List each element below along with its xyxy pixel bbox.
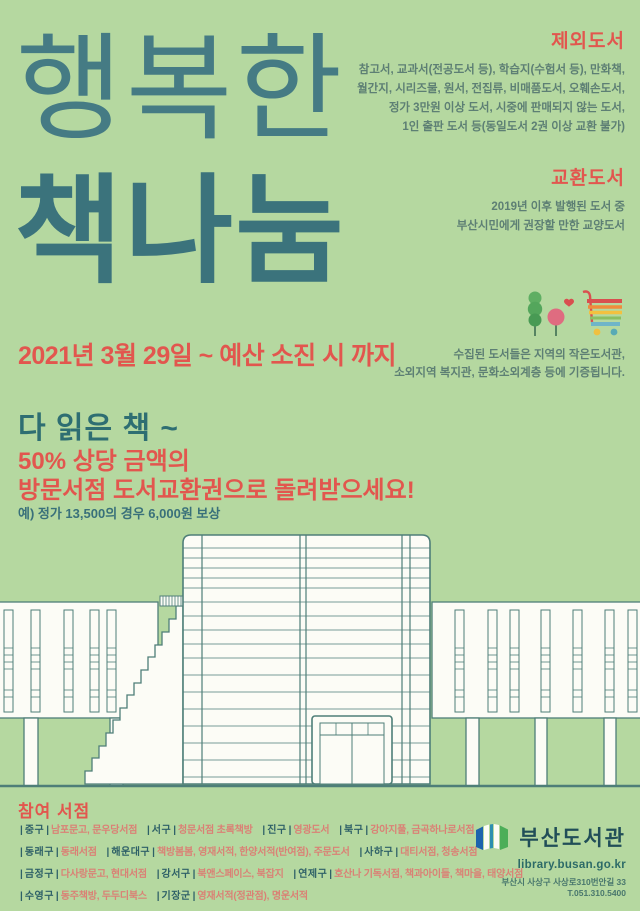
bookstore-entry: |강서구|북앤스페이스, 북잡지 xyxy=(155,869,289,880)
separator: | xyxy=(20,869,23,880)
exchange-books-text: 2019년 이후 발행된 도서 중 부산시민에게 권장할 만한 교양도서 xyxy=(295,198,625,236)
poster-background: 행복한 책나눔 2021년 3월 29일 ~ 예산 소진 시 까지 제외도서 참… xyxy=(0,0,640,911)
separator: | xyxy=(262,825,265,836)
library-brand-block: 부산도서관 library.busan.go.kr 부산시 사상구 사상로310… xyxy=(475,822,626,899)
district-label: 강서구 xyxy=(162,869,191,880)
bookstore-entry: |사하구|대티서점, 청송서점 xyxy=(357,847,482,858)
bookstore-entry: |진구|영광도서 xyxy=(260,825,334,836)
open-book-logo-icon xyxy=(475,822,511,852)
store-names: 영광도서 xyxy=(293,825,329,836)
store-names: 동래서점 xyxy=(61,847,97,858)
separator: | xyxy=(20,891,23,902)
store-names: 대티서점, 청송서점 xyxy=(400,847,477,858)
district-label: 진구 xyxy=(267,825,286,836)
store-names: 강아지풀, 금곡하나로서점 xyxy=(370,825,474,836)
separator: | xyxy=(56,847,59,858)
district-label: 수영구 xyxy=(25,891,54,902)
separator: | xyxy=(56,869,59,880)
separator: | xyxy=(152,847,155,858)
store-names: 남포문고, 문우당서점 xyxy=(51,825,137,836)
green-tree-icon xyxy=(528,292,542,337)
bookstore-row: |동래구|동래서점 |해운대구|책방봄봄, 영재서적, 한양서적(반여점), 주… xyxy=(18,842,483,864)
library-building-illustration xyxy=(0,528,640,793)
separator: | xyxy=(365,825,368,836)
promo-voucher: 방문서점 도서교환권으로 돌려받으세요! xyxy=(18,470,415,505)
library-name: 부산도서관 xyxy=(519,822,626,852)
store-names: 청문서점 초록책방 xyxy=(178,825,253,836)
district-label: 사하구 xyxy=(364,847,393,858)
shopping-cart-icon xyxy=(583,292,622,336)
store-names: 영재서적(정관점), 명운서적 xyxy=(197,891,307,902)
pink-tree-heart-icon xyxy=(548,299,575,336)
district-label: 해운대구 xyxy=(111,847,150,858)
separator: | xyxy=(293,869,296,880)
bookstores-list: |중구|남포문고, 문우당서점 |서구|청문서점 초록책방 |진구|영광도서 |… xyxy=(18,820,483,908)
district-label: 북구 xyxy=(344,825,363,836)
separator: | xyxy=(329,869,332,880)
bookstore-entry: |수영구|동주책방, 두두디북스 xyxy=(18,891,152,902)
library-website: library.busan.go.kr xyxy=(475,859,626,871)
district-label: 기장군 xyxy=(162,891,191,902)
store-names: 동주책방, 두두디북스 xyxy=(61,891,147,902)
excluded-line: 1인 출판 도서 등(동일도서 2권 이상 교환 불가) xyxy=(295,118,625,137)
bookstores-heading: 참여 서점 xyxy=(18,797,90,822)
exchange-line: 부산시민에게 권장할 만한 교양도서 xyxy=(295,217,625,236)
separator: | xyxy=(193,891,196,902)
separator: | xyxy=(289,825,292,836)
bookstore-entry: |기장군|영재서적(정관점), 명운서적 xyxy=(155,891,313,902)
donation-icons xyxy=(295,288,625,338)
separator: | xyxy=(157,891,160,902)
donation-line: 수집된 도서들은 지역의 작은도서관, xyxy=(295,346,625,364)
district-label: 금정구 xyxy=(25,869,54,880)
excluded-books-text: 참고서, 교과서(전공도서 등), 학습지(수험서 등), 만화책, 월간지, … xyxy=(295,61,625,137)
separator: | xyxy=(339,825,342,836)
trees-and-cart-icon xyxy=(525,288,625,338)
library-address: 부산시 사상구 사상로310번안길 33 T.051.310.5400 xyxy=(475,877,626,899)
bookstore-entry: |금정구|다사랑문고, 현대서점 xyxy=(18,869,152,880)
store-names: 책방봄봄, 영재서적, 한양서적(반여점), 주문도서 xyxy=(157,847,350,858)
separator: | xyxy=(359,847,362,858)
info-column: 제외도서 참고서, 교과서(전공도서 등), 학습지(수험서 등), 만화책, … xyxy=(295,26,625,382)
bookstore-row: |수영구|동주책방, 두두디북스 |기장군|영재서적(정관점), 명운서적 xyxy=(18,886,483,908)
separator: | xyxy=(20,825,23,836)
separator: | xyxy=(46,825,49,836)
separator: | xyxy=(395,847,398,858)
excluded-line: 참고서, 교과서(전공도서 등), 학습지(수험서 등), 만화책, xyxy=(295,61,625,80)
district-label: 중구 xyxy=(25,825,44,836)
separator: | xyxy=(193,869,196,880)
bookstore-row: |중구|남포문고, 문우당서점 |서구|청문서점 초록책방 |진구|영광도서 |… xyxy=(18,820,483,842)
separator: | xyxy=(147,825,150,836)
exchange-books-heading: 교환도서 xyxy=(295,163,625,190)
excluded-books-heading: 제외도서 xyxy=(295,26,625,53)
bookstore-entry: |북구|강아지풀, 금곡하나로서점 xyxy=(337,825,479,836)
donation-line: 소외지역 복지관, 문화소외계층 등에 기증됩니다. xyxy=(295,364,625,382)
bookstore-entry: |서구|청문서점 초록책방 xyxy=(145,825,258,836)
promo-example: 예) 정가 13,500의 경우 6,000원 보상 xyxy=(18,503,220,522)
excluded-line: 정가 3만원 이상 도서, 시중에 판매되지 않는 도서, xyxy=(295,99,625,118)
donation-note: 수집된 도서들은 지역의 작은도서관, 소외지역 복지관, 문화소외계층 등에 … xyxy=(295,346,625,382)
separator: | xyxy=(56,891,59,902)
separator: | xyxy=(157,869,160,880)
store-names: 북앤스페이스, 북잡지 xyxy=(197,869,283,880)
separator: | xyxy=(107,847,110,858)
phone-line: T.051.310.5400 xyxy=(475,888,626,899)
exchange-line: 2019년 이후 발행된 도서 중 xyxy=(295,198,625,217)
bookstore-entry: |중구|남포문고, 문우당서점 xyxy=(18,825,142,836)
bookstore-entry: |동래구|동래서점 xyxy=(18,847,102,858)
separator: | xyxy=(173,825,176,836)
bookstore-row: |금정구|다사랑문고, 현대서점 |강서구|북앤스페이스, 북잡지 |연제구|호… xyxy=(18,864,483,886)
separator: | xyxy=(20,847,23,858)
excluded-line: 월간지, 시리즈물, 원서, 전집류, 비매품도서, 오훼손도서, xyxy=(295,80,625,99)
store-names: 다사랑문고, 현대서점 xyxy=(61,869,147,880)
district-label: 연제구 xyxy=(298,869,327,880)
district-label: 서구 xyxy=(152,825,171,836)
address-line: 부산시 사상구 사상로310번안길 33 xyxy=(475,877,626,888)
bookstore-entry: |해운대구|책방봄봄, 영재서적, 한양서적(반여점), 주문도서 xyxy=(105,847,355,858)
district-label: 동래구 xyxy=(25,847,54,858)
